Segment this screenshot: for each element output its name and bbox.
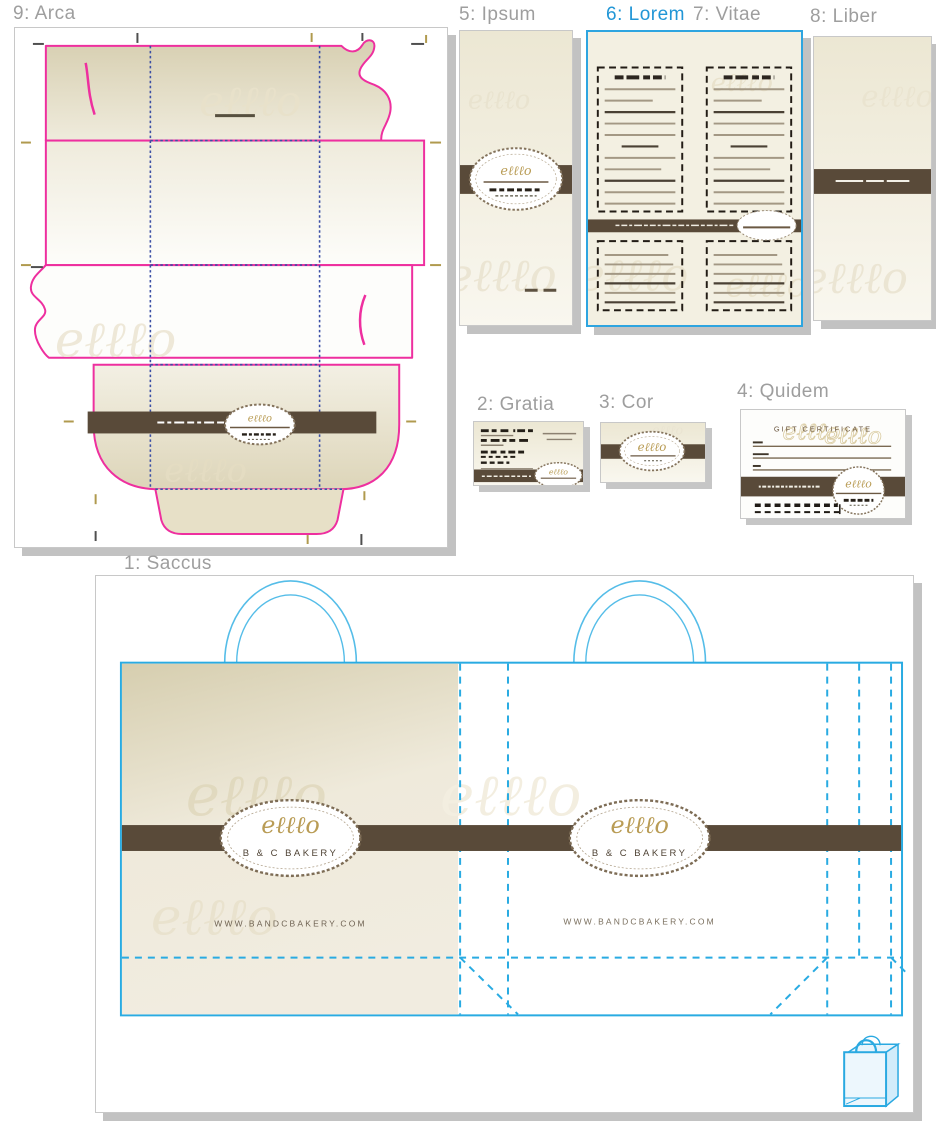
- watermark-swirl: eℓℓℓo: [861, 78, 931, 113]
- gift-certificate-title: GIFT CERTIFICATE: [774, 425, 872, 434]
- logo-mark: eℓℓℓo: [500, 164, 531, 179]
- website-url-back: WWW.BANDCBAKERY.COM: [563, 917, 716, 927]
- panel-liber: eℓℓℓo eℓℓℓo: [814, 37, 931, 320]
- logo-card: eℓℓℓo eℓℓℓo: [601, 423, 705, 482]
- watermark-swirl: eℓℓℓo: [725, 265, 801, 304]
- menu-spread: eℓℓℓo eℓℓℓo eℓℓℓo: [588, 32, 801, 325]
- logo-name: B & C BAKERY: [592, 848, 688, 859]
- watermark-swirl: eℓℓℓo: [440, 761, 581, 829]
- logo-oval-back: eℓℓℓo B & C BAKERY: [570, 800, 710, 876]
- watermark-swirl: eℓℓℓo: [55, 311, 177, 369]
- watermark-swirl: eℓℓℓo: [814, 254, 908, 304]
- bag-3d-icon: [844, 1036, 898, 1106]
- artboard-quidem[interactable]: eℓℓℓo eℓℓℓo GIFT CERTIFICATE eℓℓℓo: [740, 409, 906, 519]
- logo-mark: eℓℓℓo: [549, 467, 568, 476]
- watermark-swirl: eℓℓℓo: [199, 77, 301, 126]
- artboard-cor[interactable]: eℓℓℓo eℓℓℓo: [600, 422, 706, 483]
- artboard-lorem-vitae[interactable]: eℓℓℓo eℓℓℓo eℓℓℓo: [586, 30, 803, 327]
- artboard-liber[interactable]: eℓℓℓo eℓℓℓo: [813, 36, 932, 321]
- logo-oval: eℓℓℓo: [535, 463, 582, 485]
- logo-mark: eℓℓℓo: [638, 440, 667, 454]
- artboard-label-liber[interactable]: 8: Liber: [810, 6, 877, 28]
- artboard-saccus[interactable]: eℓℓℓo eℓℓℓo eℓℓℓo eℓℓℓo: [95, 575, 914, 1113]
- box-mid-panel: [46, 141, 424, 266]
- logo-mark: eℓℓℓo: [845, 478, 872, 491]
- box-dieline: eℓℓℓo eℓℓℓo eℓℓℓo eℓℓℓo: [15, 28, 447, 547]
- artboard-label-vitae[interactable]: 7: Vitae: [693, 4, 761, 26]
- box-tub-flap-fill: [155, 489, 343, 534]
- artboard-label-saccus[interactable]: 1: Saccus: [124, 553, 212, 575]
- watermark-swirl: eℓℓℓo: [151, 888, 278, 948]
- logo-mark: eℓℓℓo: [261, 811, 319, 839]
- logo-oval-front: eℓℓℓo B & C BAKERY: [221, 800, 361, 876]
- bag-dieline: eℓℓℓo eℓℓℓo eℓℓℓo eℓℓℓo: [96, 576, 913, 1112]
- watermark-swirl: eℓℓℓo: [711, 68, 773, 98]
- artboard-label-cor[interactable]: 3: Cor: [599, 392, 654, 414]
- watermark-swirl: eℓℓℓo: [164, 450, 247, 489]
- bag-handles: [225, 581, 706, 663]
- business-card: eℓℓℓo: [474, 422, 583, 485]
- artboard-arca[interactable]: eℓℓℓo eℓℓℓo eℓℓℓo eℓℓℓo: [14, 27, 448, 548]
- artboard-label-quidem[interactable]: 4: Quidem: [737, 381, 829, 403]
- watermark-swirl: eℓℓℓo: [468, 85, 530, 115]
- gift-certificate: eℓℓℓo eℓℓℓo GIFT CERTIFICATE eℓℓℓo: [741, 410, 905, 518]
- logo-mark: eℓℓℓo: [248, 413, 272, 424]
- logo-oval: [737, 211, 796, 241]
- website-url-front: WWW.BANDCBAKERY.COM: [214, 919, 367, 929]
- artboard-label-ipsum[interactable]: 5: Ipsum: [459, 4, 536, 26]
- watermark-swirl: eℓℓℓo: [460, 249, 557, 302]
- logo-oval: eℓℓℓo: [620, 432, 685, 471]
- artboard-label-arca[interactable]: 9: Arca: [13, 3, 76, 25]
- logo-mark: eℓℓℓo: [610, 811, 668, 839]
- logo-oval: eℓℓℓo: [225, 405, 295, 445]
- logo-oval: eℓℓℓo: [470, 148, 562, 210]
- design-canvas: 9: Arca 5: Ipsum 6: Lorem 7: Vitae 8: Li…: [0, 0, 936, 1121]
- logo-oval: eℓℓℓo: [833, 467, 884, 514]
- panel-ipsum: eℓℓℓo eℓℓℓo eℓℓℓo: [460, 31, 572, 325]
- artboard-ipsum[interactable]: eℓℓℓo eℓℓℓo eℓℓℓo: [459, 30, 573, 326]
- artboard-label-lorem[interactable]: 6: Lorem: [606, 4, 685, 26]
- logo-name: B & C BAKERY: [243, 848, 339, 859]
- artboard-label-gratia[interactable]: 2: Gratia: [477, 394, 554, 416]
- artboard-gratia[interactable]: eℓℓℓo: [473, 421, 584, 486]
